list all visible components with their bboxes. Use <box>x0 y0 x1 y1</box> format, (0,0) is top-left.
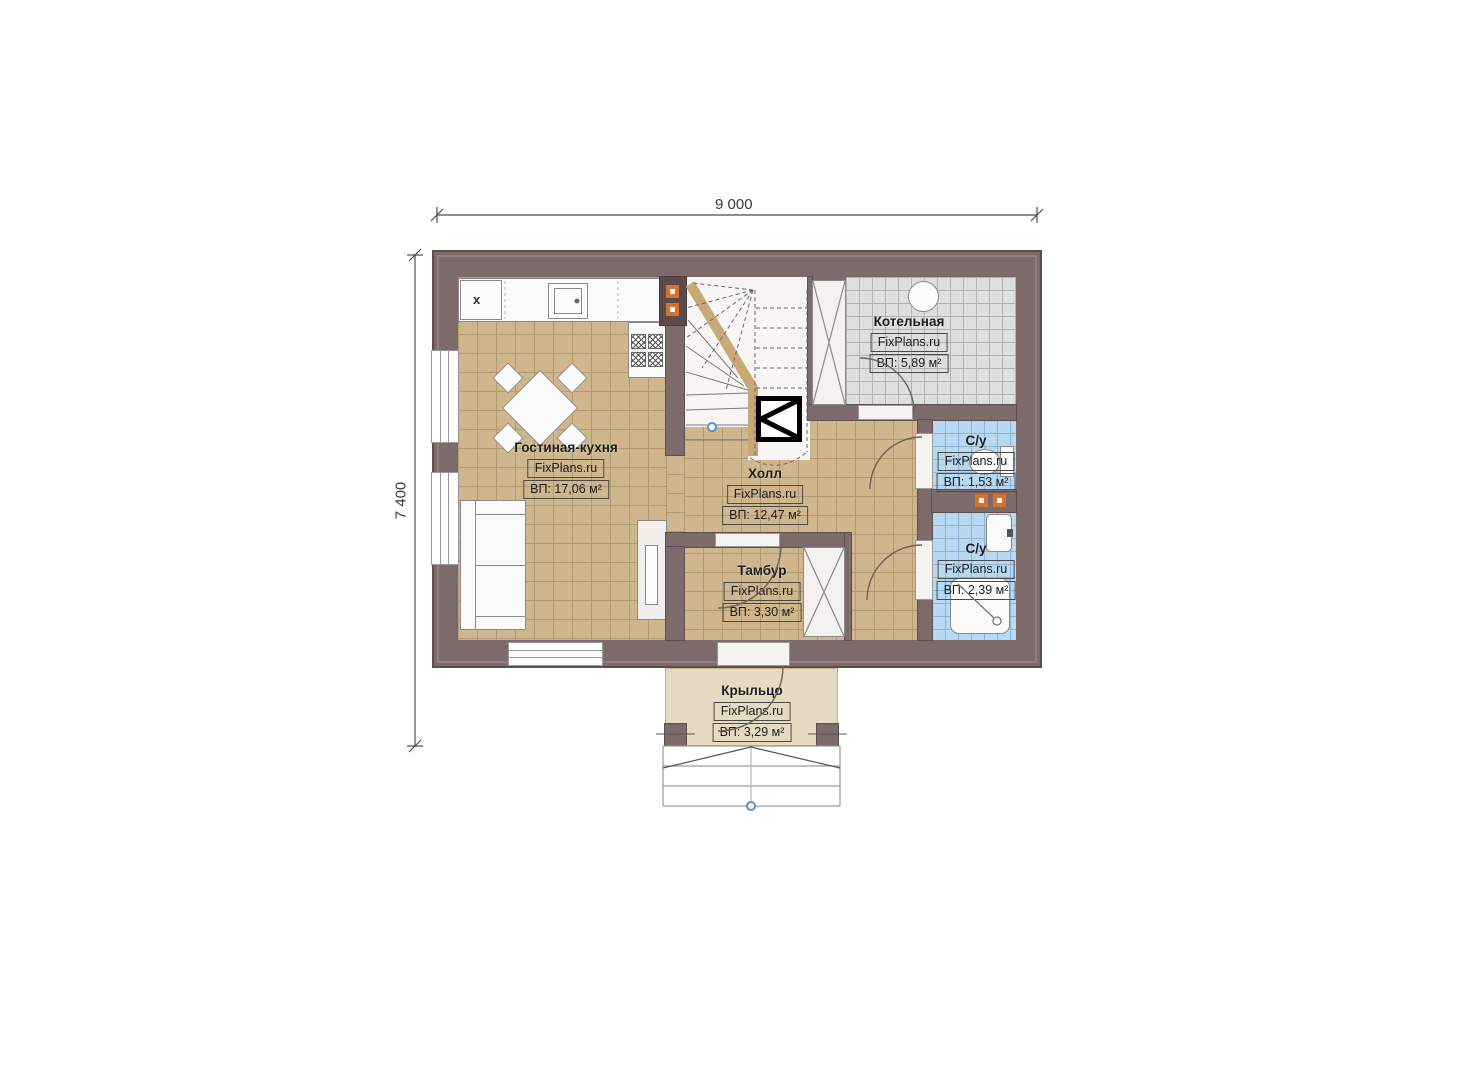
kitchen-sink-inner <box>554 288 582 314</box>
door-entry-leaf <box>717 642 790 666</box>
room-area: ВП: 2,39 м² <box>937 581 1016 600</box>
room-area: ВП: 3,29 м² <box>713 723 792 742</box>
label-hall: Холл FixPlans.ru ВП: 12,47 м² <box>722 466 808 525</box>
kitchen-appliance-mark: x <box>473 292 480 307</box>
stove-panel <box>628 322 666 378</box>
floor-plan: 9 000 7 400 x <box>0 0 1474 1080</box>
room-name: Котельная <box>874 314 945 329</box>
door-bathroom1-leaf <box>915 433 933 489</box>
window-bottom-living <box>508 642 603 666</box>
floor-stairwell <box>684 277 810 427</box>
stove-burner-4 <box>648 352 663 367</box>
room-name: Гостиная-кухня <box>514 440 617 455</box>
brand-watermark: FixPlans.ru <box>528 459 605 478</box>
door-tambour-leaf <box>715 533 780 547</box>
window-left-1 <box>431 350 459 443</box>
dimension-width-label: 9 000 <box>715 196 753 213</box>
room-name: С/у <box>965 541 986 556</box>
reference-dot-porch <box>747 802 755 810</box>
flue-bath-1 <box>975 494 988 507</box>
stove-burner-3 <box>631 352 646 367</box>
room-area: ВП: 3,30 м² <box>723 603 802 622</box>
wall-living-tambour <box>666 547 684 640</box>
flue-bath-2 <box>993 494 1006 507</box>
porch-post-left <box>665 724 686 745</box>
floor-stair-tongue <box>748 427 810 460</box>
label-living-kitchen: Гостиная-кухня FixPlans.ru ВП: 17,06 м² <box>514 440 617 499</box>
sofa-armrest-top <box>475 500 526 515</box>
door-bathroom2-leaf <box>915 540 933 600</box>
stove-burner-2 <box>648 334 663 349</box>
brand-watermark: FixPlans.ru <box>938 560 1015 579</box>
washbasin-tap <box>1007 529 1013 537</box>
brand-watermark: FixPlans.ru <box>714 702 791 721</box>
sofa-cushion-2 <box>475 565 526 617</box>
vent-shaft <box>812 280 846 405</box>
dimension-height-label: 7 400 <box>392 482 409 520</box>
sliding-door-leaf <box>645 545 658 605</box>
flue-kitchen-2 <box>666 303 679 316</box>
room-area: ВП: 5,89 м² <box>870 354 949 373</box>
sofa-back <box>460 500 476 630</box>
brand-watermark: FixPlans.ru <box>938 452 1015 471</box>
room-name: Холл <box>748 466 782 481</box>
label-bathroom-1: С/у FixPlans.ru ВП: 1,53 м² <box>937 433 1016 492</box>
room-area: ВП: 12,47 м² <box>722 506 808 525</box>
kitchen-cabinet-x <box>460 280 502 320</box>
room-area: ВП: 1,53 м² <box>937 473 1016 492</box>
porch-post-right <box>817 724 838 745</box>
boiler-tank <box>908 281 939 312</box>
brand-watermark: FixPlans.ru <box>724 582 801 601</box>
room-area: ВП: 17,06 м² <box>523 480 609 499</box>
label-tambour: Тамбур FixPlans.ru ВП: 3,30 м² <box>723 563 802 622</box>
window-left-2 <box>431 472 459 565</box>
room-name: Тамбур <box>738 563 787 578</box>
brand-watermark: FixPlans.ru <box>727 485 804 504</box>
room-name: С/у <box>965 433 986 448</box>
room-name: Крыльцо <box>721 683 782 698</box>
label-boiler-room: Котельная FixPlans.ru ВП: 5,89 м² <box>870 314 949 373</box>
sofa-armrest-bottom <box>475 616 526 630</box>
sofa-cushion-1 <box>475 514 526 566</box>
stove-burner-1 <box>631 334 646 349</box>
wall-closet-right <box>845 533 851 640</box>
closet <box>803 547 845 637</box>
label-bathroom-2: С/у FixPlans.ru ВП: 2,39 м² <box>937 541 1016 600</box>
floor-passage <box>666 455 684 533</box>
door-boiler-leaf <box>858 405 913 420</box>
flue-kitchen-1 <box>666 285 679 298</box>
brand-watermark: FixPlans.ru <box>871 333 948 352</box>
label-porch: Крыльцо FixPlans.ru ВП: 3,29 м² <box>713 683 792 742</box>
